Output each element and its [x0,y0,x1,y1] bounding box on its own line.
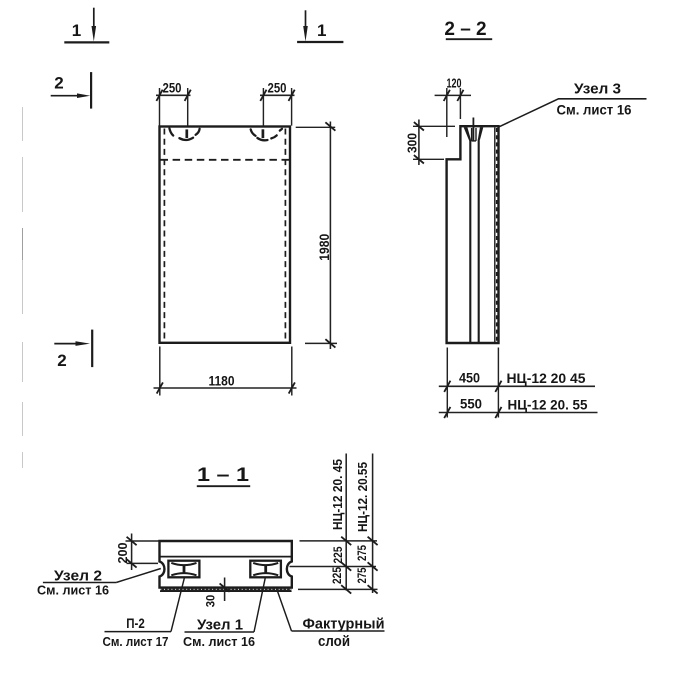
svg-text:Узел 1: Узел 1 [197,617,243,634]
svg-text:См. лист 16: См. лист 16 [37,583,109,598]
svg-text:См. лист 16: См. лист 16 [183,634,255,649]
svg-text:275: 275 [355,545,369,561]
svg-text:См. лист 16: См. лист 16 [557,102,632,118]
svg-text:2 – 2: 2 – 2 [444,19,486,40]
svg-text:1: 1 [317,21,326,40]
svg-text:225: 225 [331,546,345,563]
svg-text:1980: 1980 [316,234,332,261]
svg-text:1 – 1: 1 – 1 [197,465,250,486]
svg-text:НЦ-12 20. 45: НЦ-12 20. 45 [330,459,345,530]
svg-text:225: 225 [330,567,344,584]
svg-text:550: 550 [460,396,482,412]
svg-text:1: 1 [72,21,81,40]
svg-text:250: 250 [268,80,287,96]
svg-text:120: 120 [447,76,462,91]
svg-text:См. лист 17: См. лист 17 [103,634,169,649]
svg-text:2: 2 [54,74,63,93]
svg-text:П-2: П-2 [126,615,145,631]
svg-text:250: 250 [163,80,182,96]
svg-text:300: 300 [405,133,420,153]
svg-text:275: 275 [355,567,369,583]
svg-text:200: 200 [115,543,130,564]
svg-text:1180: 1180 [209,373,235,389]
svg-text:НЦ-12 20. 55: НЦ-12 20. 55 [508,397,588,413]
svg-text:НЦ-12 20 45: НЦ-12 20 45 [507,370,586,386]
svg-text:30: 30 [204,594,218,607]
svg-text:450: 450 [459,370,480,386]
svg-text:Фактурный: Фактурный [303,616,385,633]
svg-text:слой: слой [318,633,350,650]
svg-text:2: 2 [57,351,66,370]
svg-text:НЦ-12. 20.55: НЦ-12. 20.55 [355,462,370,532]
svg-text:Узел 3: Узел 3 [574,81,621,98]
